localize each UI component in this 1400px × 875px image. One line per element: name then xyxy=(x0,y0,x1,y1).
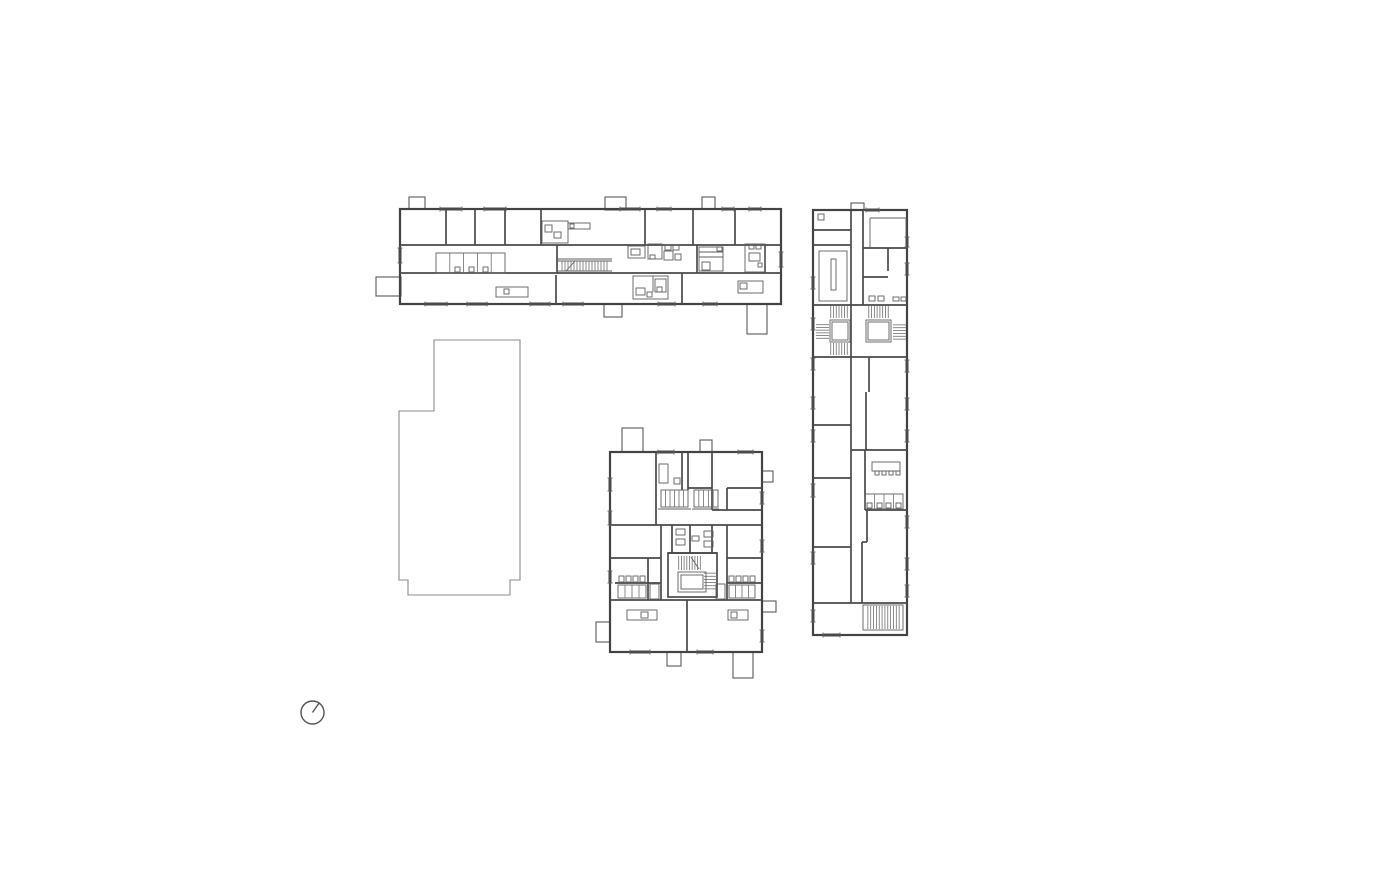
site-outline xyxy=(399,340,520,595)
plan-center-building xyxy=(596,428,776,678)
floor-plan-svg xyxy=(0,0,1400,875)
plan-top-building xyxy=(376,197,784,334)
drawing-sheet xyxy=(0,0,1400,875)
plan-right-building xyxy=(811,203,910,638)
north-arrow-icon xyxy=(301,701,324,724)
